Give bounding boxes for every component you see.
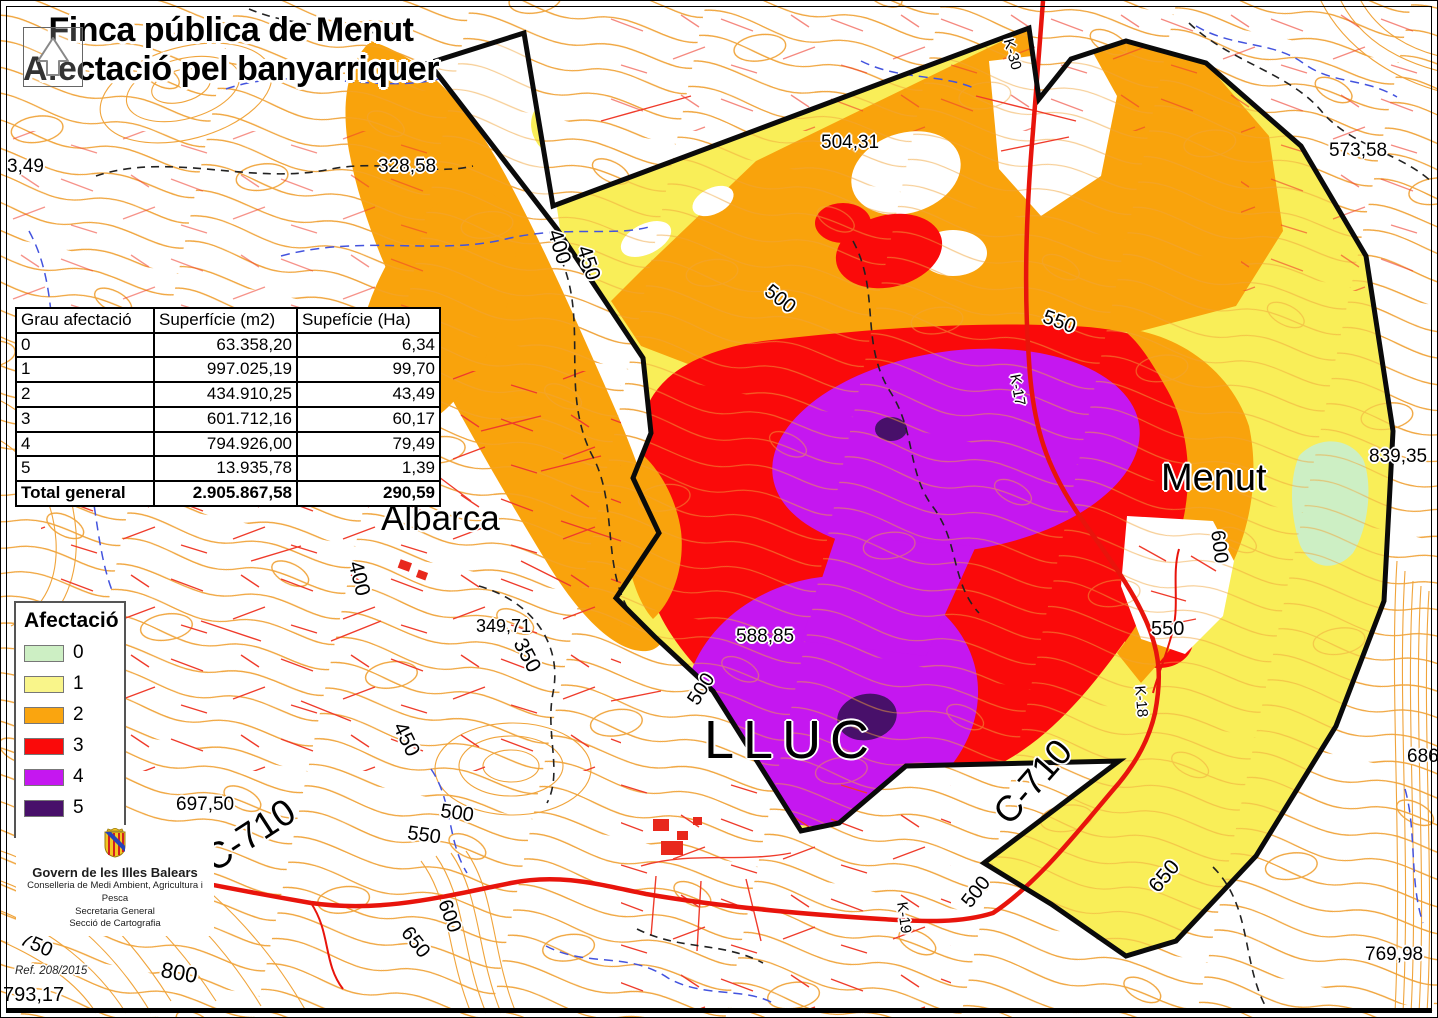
legend-item: 3 [24,735,116,757]
table-row: 2434.910,2543,49 [16,382,440,407]
legend-item: 1 [24,673,116,695]
north-arrow-icon [23,27,83,87]
legend-swatch-4 [24,769,64,786]
legend-item: 0 [24,642,116,664]
table-row: 1997.025,1999,70 [16,357,440,382]
legend-item: 2 [24,704,116,726]
legend-swatch-3 [24,738,64,755]
legend-panel: Afectació 0 1 2 3 4 5 [14,601,126,838]
table-row: 063.358,206,34 [16,333,440,358]
legend-title: Afectació [24,609,116,633]
table-row: 513.935,781,39 [16,456,440,481]
table-row: 4794.926,0079,49 [16,432,440,457]
legend-swatch-1 [24,676,64,693]
reference-number: Ref. 208/2015 [15,965,87,977]
col-ha: Supefície (Ha) [297,308,440,333]
legend-swatch-5 [24,800,64,817]
map-title: Finca pública de Menut Afectació pel ban… [21,11,441,89]
map-artwork [1,1,1438,1018]
agency-panel: Govern de les Illes Balears Conselleria … [16,825,214,936]
agency-section: Secció de Cartografia [18,918,212,931]
table-row-total: Total general2.905.867,58290,59 [16,481,440,506]
table-row: 3601.712,1660,17 [16,407,440,432]
legend-swatch-2 [24,707,64,724]
legend-item: 4 [24,766,116,788]
agency-secretariat: Secretaria General [18,906,212,919]
agency-name: Govern de les Illes Balears [18,865,212,880]
map-title-line1: Finca pública de Menut [21,11,441,50]
affectation-table: Grau afectació Superfície (m2) Supefície… [15,307,441,507]
topo-map-canvas: 3,49328,58504,31573,58839,35349,71588,85… [0,0,1438,1018]
legend-swatch-0 [24,645,64,662]
coat-of-arms-icon [102,828,128,858]
legend-item: 5 [24,797,116,819]
table-header-row: Grau afectació Superfície (m2) Supefície… [16,308,440,333]
map-title-line2: Afectació pel banyarriquer [21,50,441,89]
col-grade: Grau afectació [16,308,154,333]
col-m2: Superfície (m2) [154,308,297,333]
agency-dept: Conselleria de Medi Ambient, Agricultura… [18,880,212,906]
